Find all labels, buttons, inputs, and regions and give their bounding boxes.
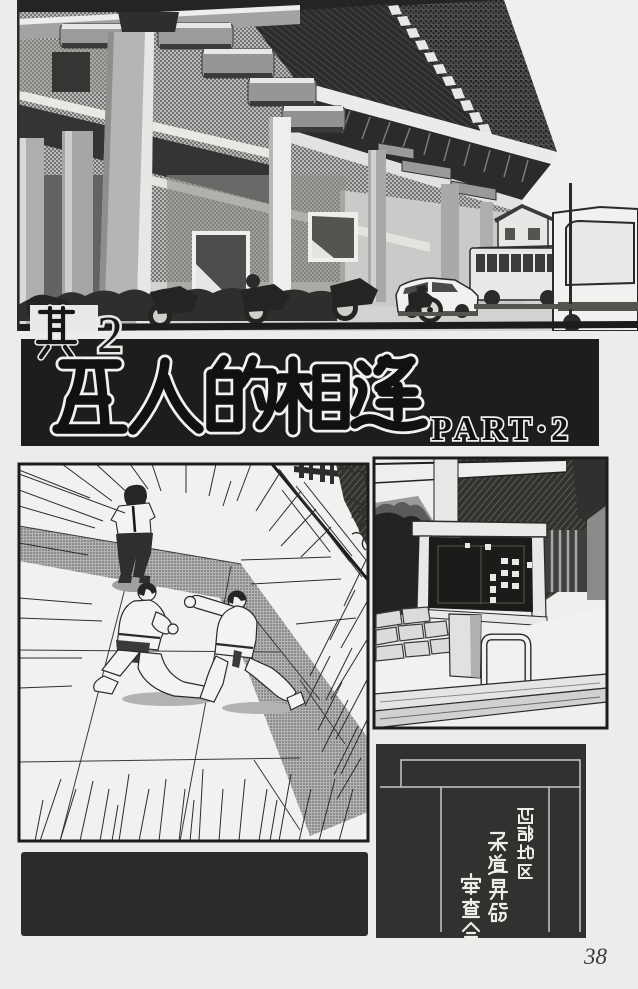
svg-text:38: 38	[583, 944, 608, 969]
svg-text:PART·2: PART·2	[431, 411, 572, 448]
svg-text:2: 2	[97, 307, 123, 364]
